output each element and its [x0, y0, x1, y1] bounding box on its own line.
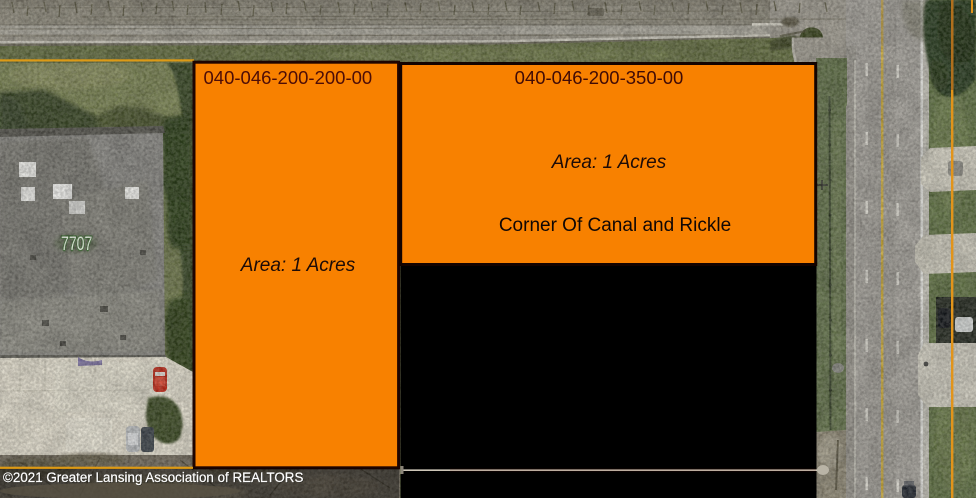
- svg-text:040-046-200-200-00: 040-046-200-200-00: [204, 67, 373, 88]
- svg-text:Area: 1 Acres: Area: 1 Acres: [551, 152, 667, 173]
- svg-text:Corner Of Canal and Rickle: Corner Of Canal and Rickle: [499, 215, 731, 236]
- svg-text:©2021 Greater Lansing Associat: ©2021 Greater Lansing Association of REA…: [3, 470, 303, 485]
- svg-text:040-046-200-350-00: 040-046-200-350-00: [515, 67, 684, 88]
- svg-text:Area: 1 Acres: Area: 1 Acres: [240, 255, 356, 276]
